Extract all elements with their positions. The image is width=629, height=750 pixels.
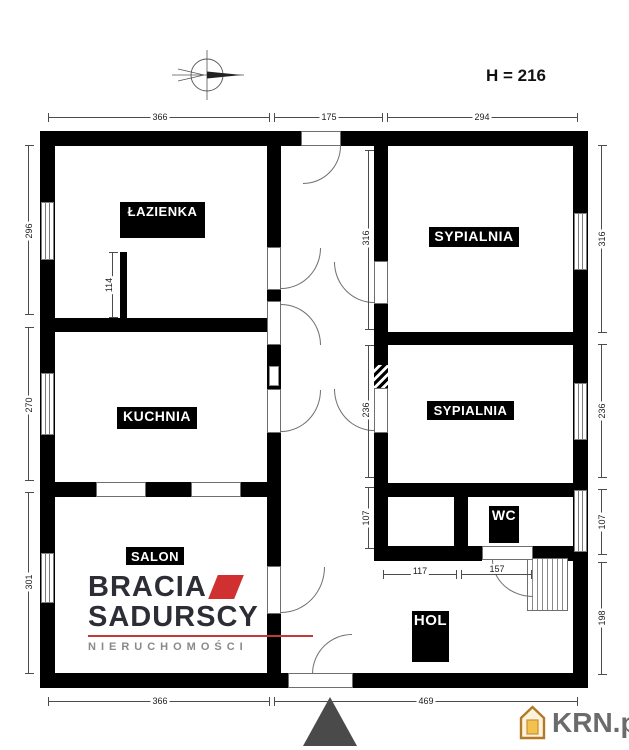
dim-label: 316 <box>597 229 607 248</box>
wall-vent-slot <box>269 366 279 386</box>
dim-label: 114 <box>104 276 114 294</box>
portal-name: KRN.pl <box>552 707 629 739</box>
room-label-kitchen: KUCHNIA <box>117 407 197 429</box>
opening <box>96 482 146 497</box>
window <box>574 213 587 270</box>
window <box>41 373 54 435</box>
door-arc <box>281 304 321 345</box>
wall <box>40 131 302 146</box>
wall <box>374 332 588 345</box>
window <box>41 553 54 603</box>
dim-label: 117 <box>411 566 429 576</box>
stairs <box>527 558 568 611</box>
dim-label: 107 <box>361 508 371 527</box>
room-label-bedroom-top: SYPIALNIA <box>429 227 519 247</box>
dim-label: 198 <box>597 608 607 627</box>
wall-flue-hatch <box>374 365 388 388</box>
dim-label: 366 <box>150 696 169 706</box>
dim-label: 316 <box>361 228 371 247</box>
dim-label: 157 <box>487 564 506 574</box>
agency-logo-line3: NIERUCHOMOŚCI <box>88 641 328 653</box>
portal-watermark: KRN.pl <box>516 704 629 741</box>
dim-label: 236 <box>597 401 607 420</box>
room-label-wc: WC <box>489 506 519 543</box>
wall <box>40 673 288 688</box>
wall <box>341 131 588 146</box>
agency-logo-line2: SADURSCY <box>88 602 328 632</box>
door-slab <box>288 673 353 688</box>
agency-logo-divider <box>88 635 313 637</box>
door-arc <box>281 390 321 432</box>
dim-label: 296 <box>24 221 34 240</box>
compass-icon <box>168 48 248 102</box>
door-slab <box>267 389 281 433</box>
dim-label: 294 <box>472 112 491 122</box>
wall <box>40 318 281 332</box>
wall <box>374 546 482 561</box>
wall <box>374 483 588 497</box>
dim-label: 236 <box>361 400 371 419</box>
door-slab <box>267 301 281 345</box>
dim-label: 301 <box>24 572 34 591</box>
house-icon <box>516 704 549 741</box>
wall <box>353 673 588 688</box>
door-slab <box>301 131 341 146</box>
wall <box>267 290 281 301</box>
door-slab <box>482 546 533 560</box>
wall <box>146 482 191 497</box>
opening <box>191 482 241 497</box>
wall <box>267 146 281 247</box>
floor-plan: H = 216 <box>0 0 629 750</box>
dim-label: 270 <box>24 395 34 414</box>
wall <box>374 146 388 261</box>
dim-label: 469 <box>416 696 435 706</box>
room-label-bedroom-mid: SYPIALNIA <box>427 401 514 420</box>
dim-label: 366 <box>150 112 169 122</box>
wall-partition <box>120 252 127 318</box>
agency-logo-red-mark-icon <box>208 575 244 599</box>
window <box>574 383 587 440</box>
window <box>574 490 587 552</box>
door-arc <box>303 146 341 184</box>
door-slab <box>374 388 388 433</box>
wall <box>267 433 281 566</box>
entrance-arrow-icon <box>303 697 357 746</box>
door-slab <box>267 247 281 290</box>
door-slab <box>374 261 388 304</box>
agency-logo-line1: BRACIA <box>88 572 207 602</box>
wall <box>40 482 96 497</box>
wall <box>241 482 281 497</box>
window <box>41 202 54 260</box>
agency-logo: BRACIA SADURSCY NIERUCHOMOŚCI <box>88 572 328 653</box>
door-arc <box>281 248 321 289</box>
dim-label: 175 <box>319 112 338 122</box>
room-label-living-room: SALON <box>126 547 184 565</box>
room-label-bathroom: ŁAZIENKA <box>120 202 205 238</box>
ceiling-height-note: H = 216 <box>486 66 546 86</box>
room-label-hall: HOL <box>412 611 449 662</box>
dim-line <box>461 574 532 575</box>
dim-label: 107 <box>597 512 607 531</box>
